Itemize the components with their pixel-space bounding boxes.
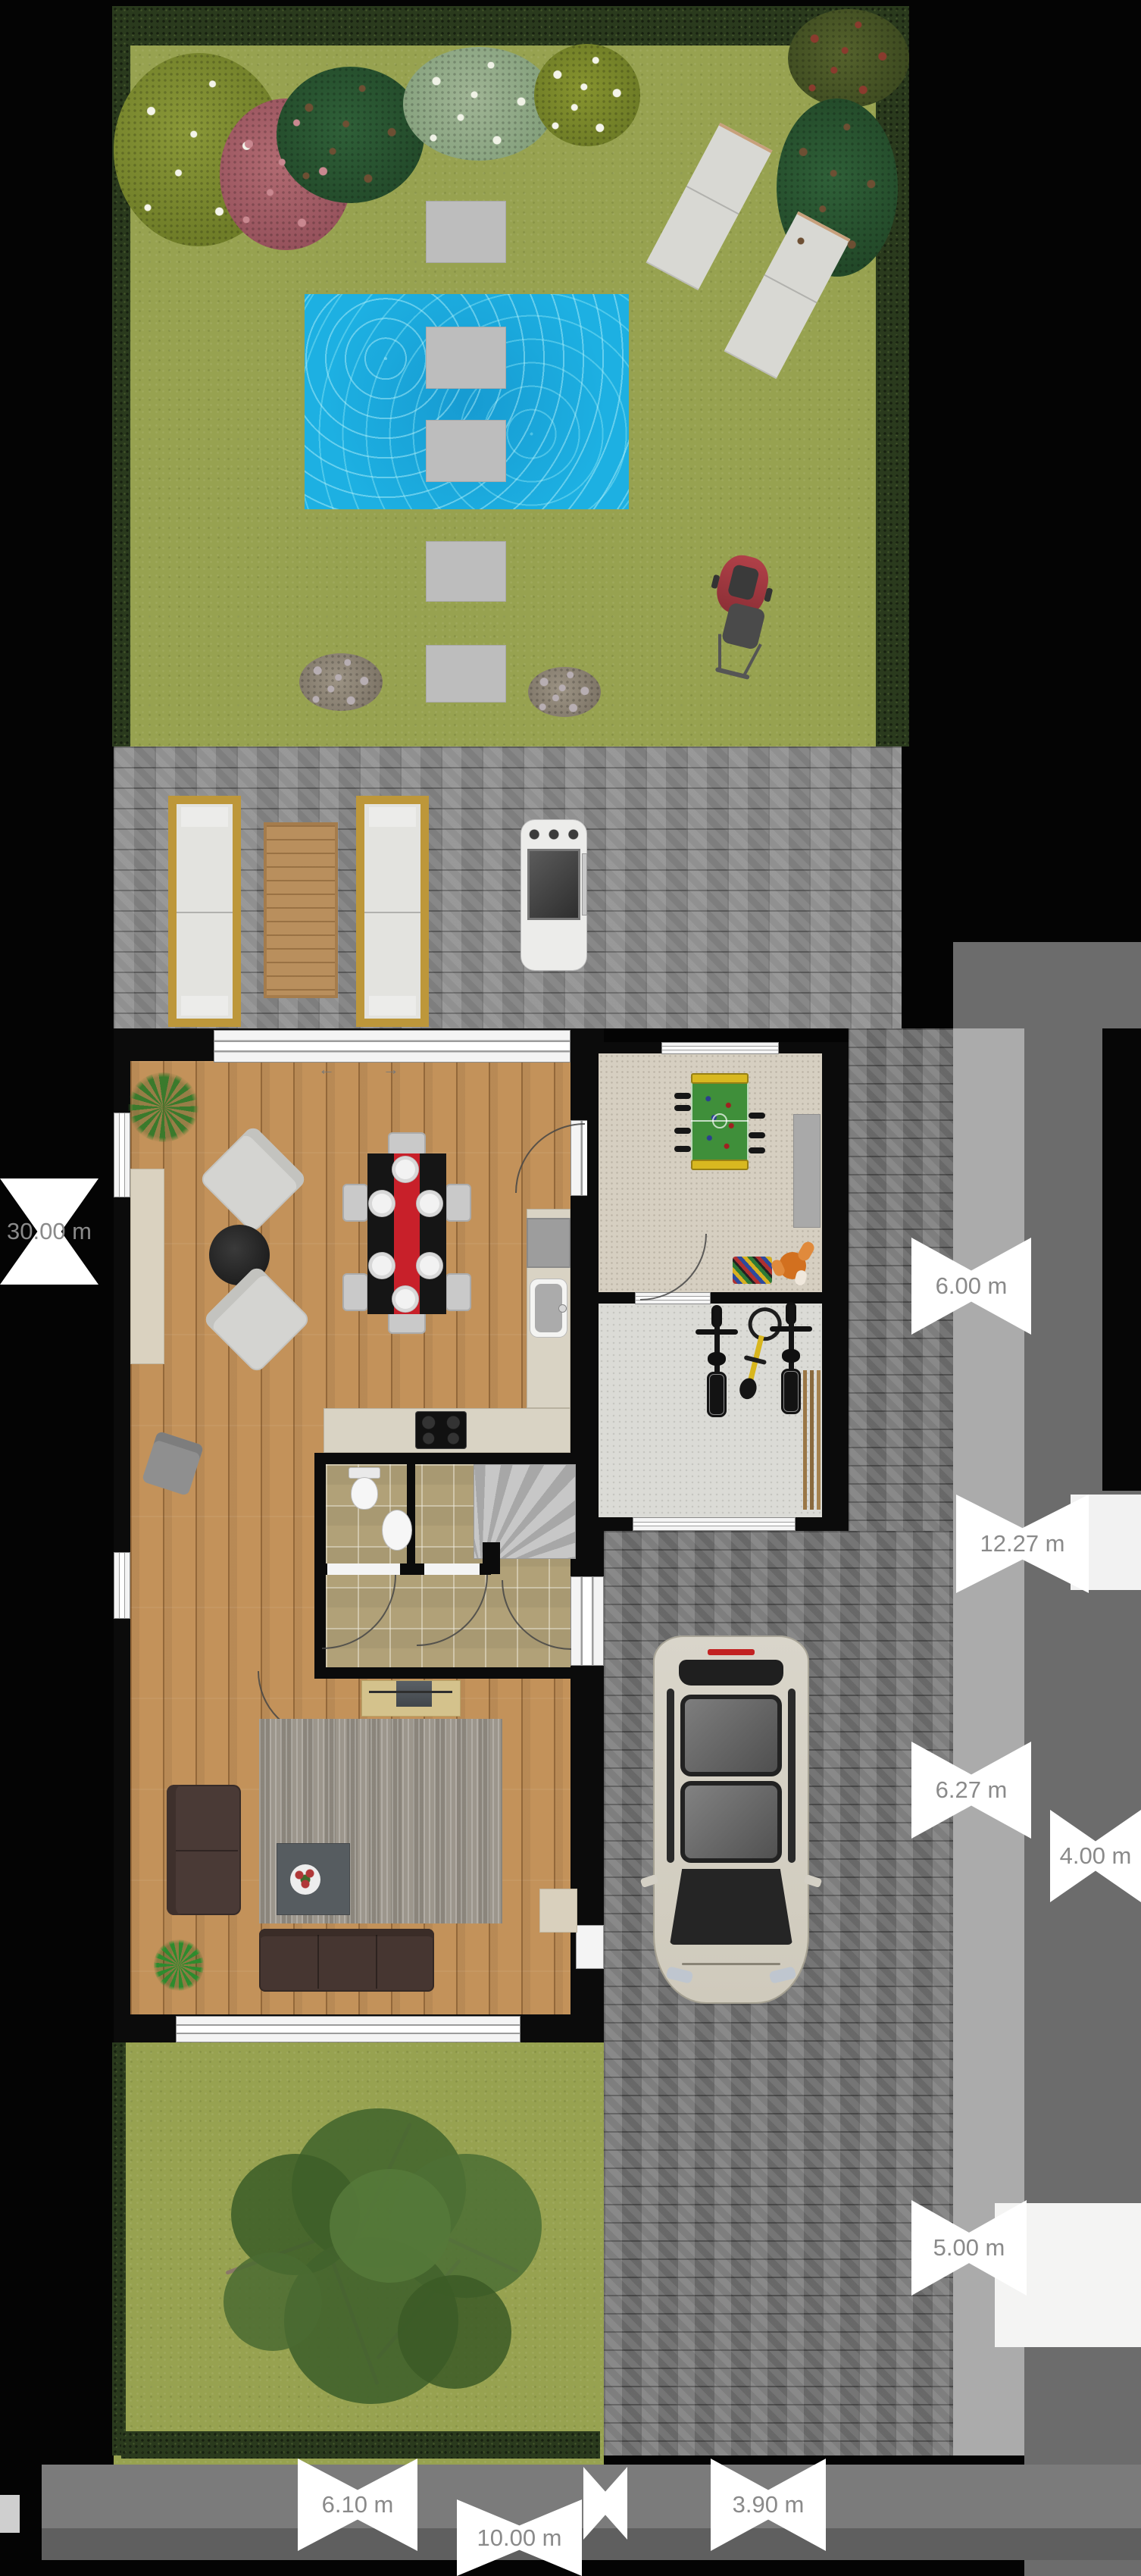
dimension-front-segment: 5.00 m [911, 2200, 1027, 2296]
tv-sideboard [361, 1680, 461, 1717]
dimension-driveway-width: 3.90 m [711, 2459, 826, 2551]
toilet [347, 1467, 382, 1510]
foosball-handle [674, 1146, 691, 1152]
tree-foliage [330, 2169, 451, 2283]
loveseat-seam [176, 1850, 238, 1851]
shed-window [633, 1517, 796, 1531]
foosball-handle [674, 1105, 691, 1111]
mower-handle [718, 634, 721, 671]
grill-surface [527, 849, 580, 920]
left-window [114, 1113, 130, 1197]
flower-vase [290, 1864, 320, 1895]
car-side-glass [788, 1689, 796, 1863]
plate [417, 1191, 442, 1216]
bike-seat [782, 1349, 800, 1363]
hedge-right [876, 6, 909, 747]
bike-seat [737, 1376, 758, 1401]
stair-wall [483, 1542, 500, 1574]
dimension-plot-width: 10.00 m [457, 2499, 582, 2576]
sofa-seam [376, 1935, 377, 1989]
tree-foliage [398, 2275, 511, 2389]
toilet-bowl [351, 1477, 378, 1510]
car-hood-line [682, 1963, 780, 1965]
foosball-goal [691, 1160, 749, 1170]
sofa-seam [317, 1935, 319, 1989]
dining-table [367, 1153, 446, 1314]
foosball-handle [749, 1147, 765, 1153]
living-room-wall [326, 1667, 587, 1679]
garden-tools [803, 1370, 823, 1510]
dimension-driveway-segment: 6.27 m [911, 1742, 1031, 1839]
foosball-handle [749, 1113, 765, 1119]
front-window [176, 2016, 520, 2042]
cooktop [415, 1411, 467, 1449]
door-mat [539, 1889, 577, 1933]
outdoor-sofa [168, 796, 241, 1027]
foosball-goal [691, 1073, 749, 1084]
bbq-grill [521, 820, 586, 970]
dark-green-berry-bush [777, 99, 898, 277]
tv-stand [369, 1691, 452, 1693]
dimension-label: 30.00 m [0, 1178, 98, 1285]
dimension-outbuilding-depth: 6.00 m [911, 1238, 1031, 1335]
grill-knobs [521, 826, 586, 843]
plate [392, 1286, 418, 1312]
dimension-label: 6.10 m [298, 2459, 417, 2551]
car-rear-window [679, 1660, 783, 1686]
floor-plan: ← → [0, 0, 1141, 2576]
hand-basin [382, 1510, 412, 1551]
car-brake-light [708, 1649, 755, 1655]
dimension-label: 4.00 m [1050, 1810, 1141, 1902]
sofa [259, 1929, 434, 1992]
car-roof-window [680, 1781, 782, 1863]
stepping-stone [426, 645, 506, 703]
plate [369, 1191, 395, 1216]
wc-door-threshold [327, 1563, 400, 1575]
dining-chair [445, 1273, 471, 1311]
dimension-label: 6.00 m [911, 1238, 1031, 1335]
olive-bush-white-flowers [534, 44, 640, 146]
house-plant [154, 1939, 204, 1992]
car-roof-window [680, 1695, 782, 1776]
plate [392, 1157, 418, 1182]
patio-sliding-door [214, 1030, 570, 1063]
fern-plant [127, 1072, 199, 1142]
sage-green-bush [403, 47, 555, 161]
wall-shelf [793, 1114, 821, 1228]
plush-toy [773, 1241, 817, 1284]
slide-arrow-left-icon: ← [318, 1060, 335, 1079]
right-black-strip [1102, 1028, 1141, 1491]
left-window [114, 1552, 130, 1619]
dimension-label: 5.00 m [911, 2200, 1027, 2296]
car-top-view [653, 1635, 809, 2004]
dining-chair [445, 1184, 471, 1222]
dimension-divider [583, 2467, 627, 2540]
stepping-stone [426, 201, 506, 263]
dining-chair [342, 1273, 368, 1311]
plate [369, 1253, 395, 1279]
play-mat [733, 1257, 772, 1284]
dimension-arrow-icon [583, 2467, 627, 2540]
bike-rear-wheel [781, 1369, 801, 1414]
autumn-tree [788, 9, 909, 108]
dimension-right-offset: 4.00 m [1050, 1810, 1141, 1902]
foosball-center-circle [712, 1113, 727, 1128]
side-entry-door [570, 1576, 604, 1666]
kitchen-sink [530, 1279, 567, 1337]
grill-handle [582, 853, 587, 916]
front-door [576, 1925, 604, 1969]
slide-arrow-right-icon: → [383, 1060, 399, 1079]
foosball-field [691, 1081, 749, 1163]
foosball-handle [749, 1132, 765, 1138]
outdoor-sofa [356, 796, 429, 1027]
dimension-label: 3.90 m [711, 2459, 826, 2551]
sink-faucet-icon [559, 1305, 566, 1312]
bike-rear-wheel [707, 1372, 727, 1417]
stepping-stone [426, 541, 506, 602]
dimension-front-garden-width: 6.10 m [298, 2459, 417, 2551]
dimension-house-depth: 12.27 m [956, 1495, 1089, 1593]
car-side-glass [667, 1689, 674, 1863]
sink-basin [535, 1284, 562, 1332]
ground-cover [299, 653, 383, 711]
outdoor-table [264, 822, 338, 998]
dining-chair [342, 1184, 368, 1222]
hedge-top [112, 6, 909, 45]
dark-green-berry-bush [277, 67, 424, 203]
plate [417, 1253, 442, 1279]
foosball-handle [674, 1093, 691, 1099]
dimension-plot-depth-left: 30.00 m [0, 1178, 98, 1285]
bike-seat [708, 1352, 726, 1366]
coffee-table [277, 1843, 350, 1915]
hall-door-threshold [424, 1563, 480, 1575]
tv [396, 1681, 432, 1707]
stepping-stone [426, 327, 506, 389]
playroom-window [661, 1042, 779, 1054]
dimension-label: 10.00 m [457, 2499, 582, 2576]
foosball-table [691, 1073, 749, 1170]
car-windshield [670, 1869, 792, 1945]
tree-foliage [224, 2252, 322, 2351]
stepping-stone [426, 420, 506, 482]
loveseat [167, 1785, 241, 1915]
kitchen-appliance [527, 1218, 570, 1268]
wc-right-wall [407, 1464, 415, 1563]
foosball-handle [674, 1128, 691, 1134]
sideboard [130, 1169, 164, 1364]
curb-chip [0, 2495, 20, 2533]
dimension-label: 6.27 m [911, 1742, 1031, 1839]
large-tree [201, 2086, 557, 2442]
dimension-label: 12.27 m [956, 1495, 1089, 1593]
kitchen-wall [314, 1453, 587, 1464]
hedge-left-front [112, 2042, 126, 2455]
ground-cover [528, 667, 601, 717]
